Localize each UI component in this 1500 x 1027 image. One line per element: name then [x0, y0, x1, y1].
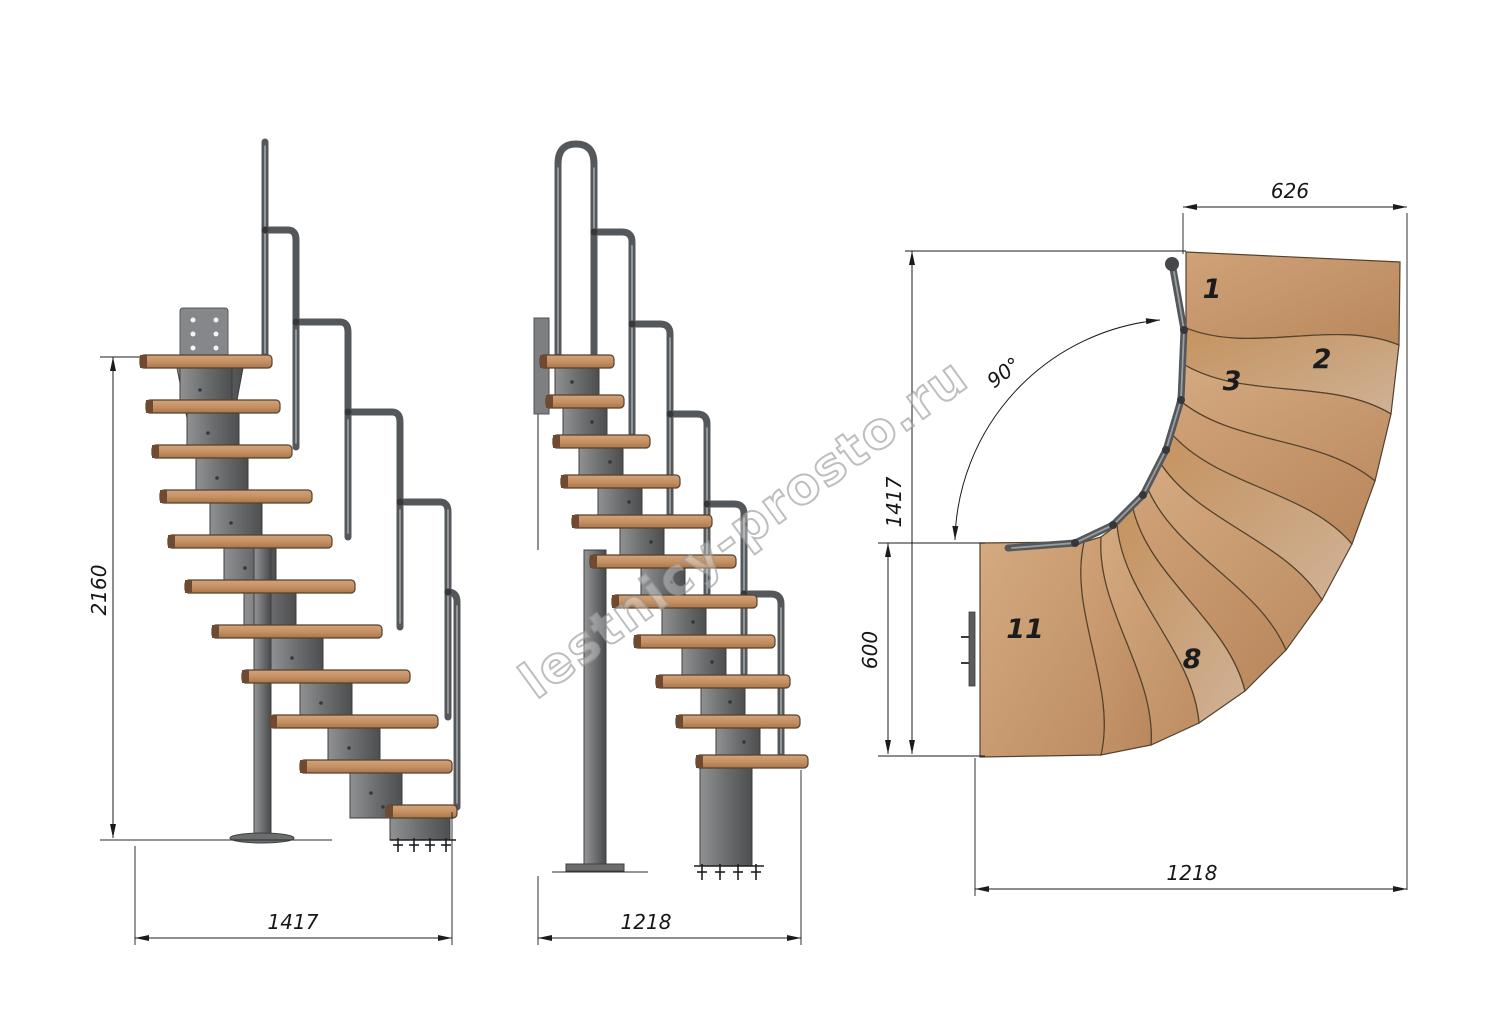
dimension-plan-total-width: 1218 [975, 758, 1407, 896]
anchor-bolts [694, 864, 764, 880]
step-label-1: 1 [1203, 274, 1222, 305]
dim-label-90deg: 90° [982, 352, 1025, 393]
plan-treads [980, 252, 1400, 757]
plan-view: 1 2 3 8 11 626 1417 600 1218 [858, 179, 1407, 896]
dim-label-2160: 2160 [87, 565, 111, 616]
dimension-middle-width: 1218 [538, 770, 801, 945]
dim-label-1218-plan: 1218 [1167, 861, 1218, 885]
dimension-left-height: 2160 [87, 357, 140, 838]
column-base-plate [566, 864, 624, 871]
floor-module [390, 818, 450, 840]
step-label-3: 3 [1223, 366, 1242, 397]
left-elevation-handrail [262, 142, 458, 807]
dim-label-1218-middle: 1218 [621, 910, 672, 934]
anchor-bolts [390, 838, 456, 852]
dim-label-626: 626 [1271, 179, 1309, 203]
floor-module [700, 768, 752, 866]
dim-label-1417-plan: 1417 [882, 476, 906, 527]
staircase-technical-drawing: 2160 1417 [0, 0, 1500, 1027]
step-label-11: 11 [1006, 614, 1044, 645]
dim-label-600: 600 [858, 631, 882, 669]
dimension-plan-landing: 600 [858, 543, 985, 756]
support-post-base [230, 833, 294, 843]
step-label-2: 2 [1313, 344, 1332, 375]
step-label-8: 8 [1183, 644, 1202, 675]
dim-label-1417-left: 1417 [268, 910, 319, 934]
plan-wall-bracket [961, 612, 975, 686]
left-elevation-view: 2160 1417 [87, 142, 457, 945]
wall-mount-plate [180, 308, 228, 357]
drawing-canvas: 2160 1417 [0, 0, 1500, 1027]
